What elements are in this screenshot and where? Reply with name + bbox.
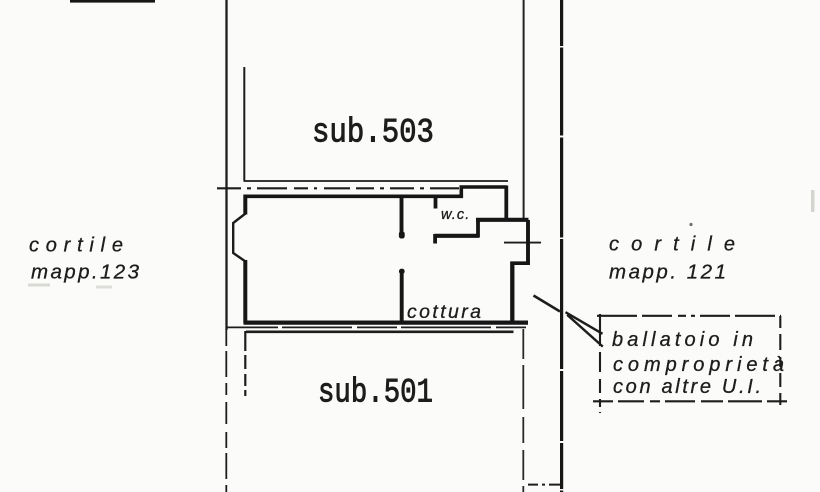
svg-text:mapp.123: mapp.123	[31, 261, 140, 284]
svg-text:con altre U.I.: con altre U.I.	[613, 376, 761, 398]
svg-text:w.c.: w.c.	[441, 207, 470, 223]
svg-text:sub.503: sub.503	[312, 114, 434, 153]
svg-text:sub.501: sub.501	[318, 374, 433, 413]
